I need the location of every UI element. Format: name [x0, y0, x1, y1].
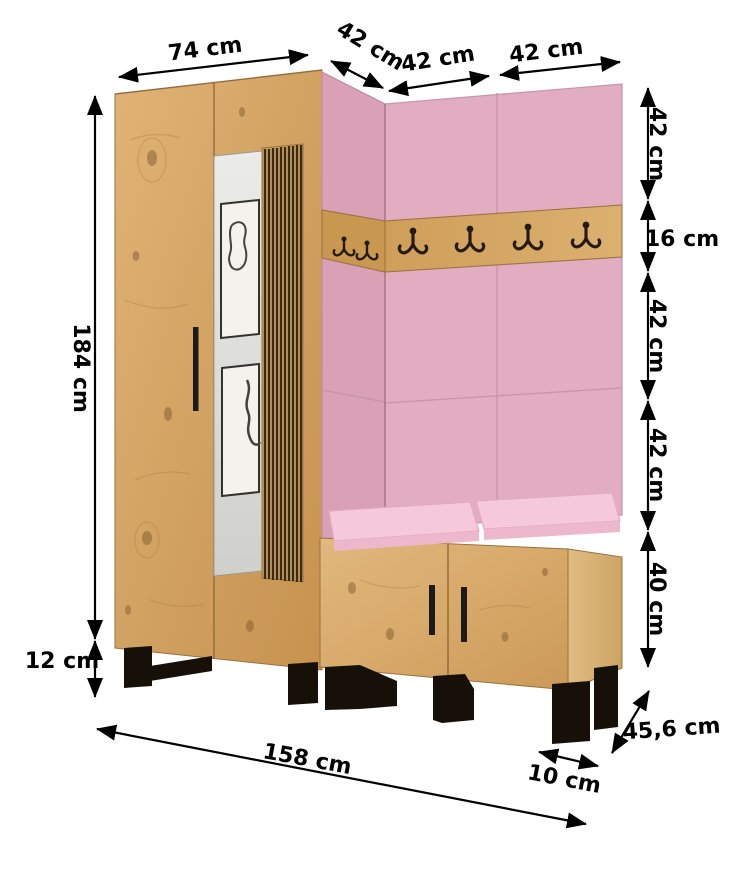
dim-arrow-42-a: [389, 76, 489, 91]
furniture-dimension-diagram: 74 cm 42 cm 42 cm 42 cm 42 cm 16 cm 42 c…: [0, 0, 748, 872]
dim-label-right-mid: 42 cm: [644, 299, 669, 373]
dim-label-right-low: 42 cm: [644, 428, 669, 502]
dim-label-panel-a: 42 cm: [399, 41, 476, 77]
bench: [320, 538, 622, 690]
poster-frame-bottom: [222, 364, 259, 496]
dim-label-total-height: 184 cm: [68, 323, 93, 413]
dim-label-rail-height: 16 cm: [645, 227, 719, 252]
dim-label-depth: 45,6 cm: [622, 714, 721, 746]
slat-panel: [262, 144, 303, 582]
wardrobe: [115, 70, 322, 670]
dim-label-right-top: 42 cm: [644, 107, 669, 181]
leg: [433, 674, 474, 723]
dim-label-leg-width: 10 cm: [525, 760, 603, 799]
dim-label-bench-height: 40 cm: [644, 562, 669, 636]
wall-panels-front: [385, 84, 622, 540]
leg-bar: [150, 656, 212, 681]
leg: [594, 665, 618, 730]
wall-panels-return: [322, 72, 385, 545]
leg: [552, 681, 590, 744]
wall-panel: [322, 72, 385, 221]
dim-label-leg-height: 12 cm: [25, 649, 99, 674]
leg: [288, 662, 318, 705]
wall-panel: [385, 84, 622, 221]
dim-label-panel-b: 42 cm: [508, 35, 585, 69]
bench-handle-right: [461, 587, 467, 642]
wardrobe-handle: [193, 327, 199, 411]
wall-panel: [385, 257, 622, 403]
dim-label-total-width: 158 cm: [261, 739, 354, 780]
bench-handle-left: [429, 585, 435, 635]
wall-panel: [322, 258, 385, 545]
dim-label-top-width: 74 cm: [167, 33, 244, 67]
leg: [124, 646, 152, 688]
